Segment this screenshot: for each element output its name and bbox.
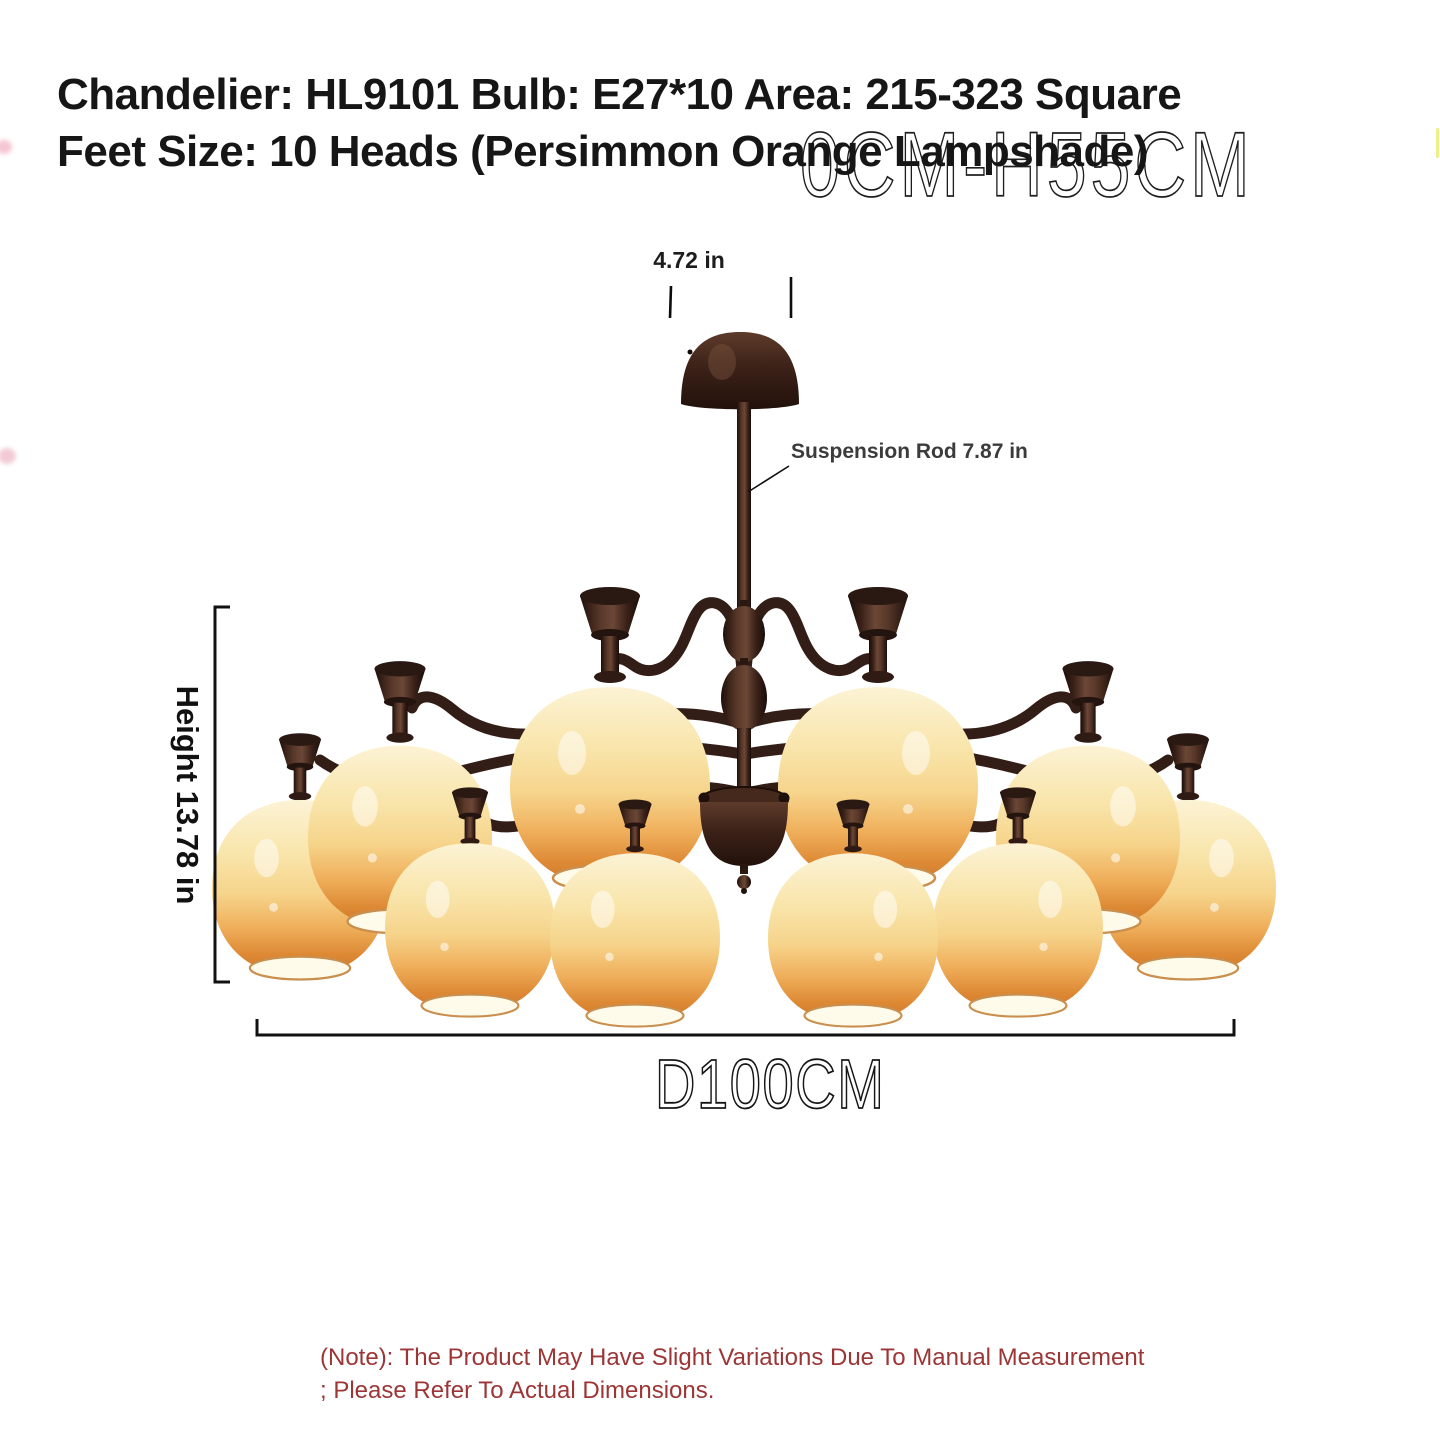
diameter-label: D100CM bbox=[655, 1046, 886, 1123]
chandelier-illustration: 0CM-H55CM bbox=[0, 0, 1440, 1440]
product-title: Chandelier: HL9101 Bulb: E27*10 Area: 21… bbox=[57, 66, 1402, 180]
measurement-note-line1: (Note): The Product May Have Slight Vari… bbox=[320, 1341, 1160, 1374]
ceiling-canopy bbox=[681, 332, 799, 409]
suspension-rod-label: Suspension Rod 7.87 in bbox=[791, 440, 1028, 464]
finial-ball bbox=[737, 875, 751, 889]
height-label: Height 13.78 in bbox=[169, 686, 205, 905]
center-bowl bbox=[700, 802, 788, 866]
product-title-line2: Feet Size: 10 Heads (Persimmon Orange La… bbox=[57, 123, 1402, 180]
canopy-width-ticks bbox=[670, 277, 791, 318]
edge-artifact-mark bbox=[1436, 128, 1439, 158]
diameter-bracket bbox=[257, 1019, 1234, 1035]
product-diagram-page: 0CM-H55CM bbox=[0, 0, 1440, 1440]
product-title-line1: Chandelier: HL9101 Bulb: E27*10 Area: 21… bbox=[57, 66, 1402, 123]
measurement-note-line2: ; Please Refer To Actual Dimensions. bbox=[320, 1374, 1160, 1407]
pointer-line bbox=[748, 466, 789, 492]
canopy-width-label: 4.72 in bbox=[653, 247, 725, 274]
measurement-note: (Note): The Product May Have Slight Vari… bbox=[320, 1341, 1160, 1407]
suspension-rod bbox=[737, 402, 751, 608]
finial-stem bbox=[740, 864, 748, 874]
